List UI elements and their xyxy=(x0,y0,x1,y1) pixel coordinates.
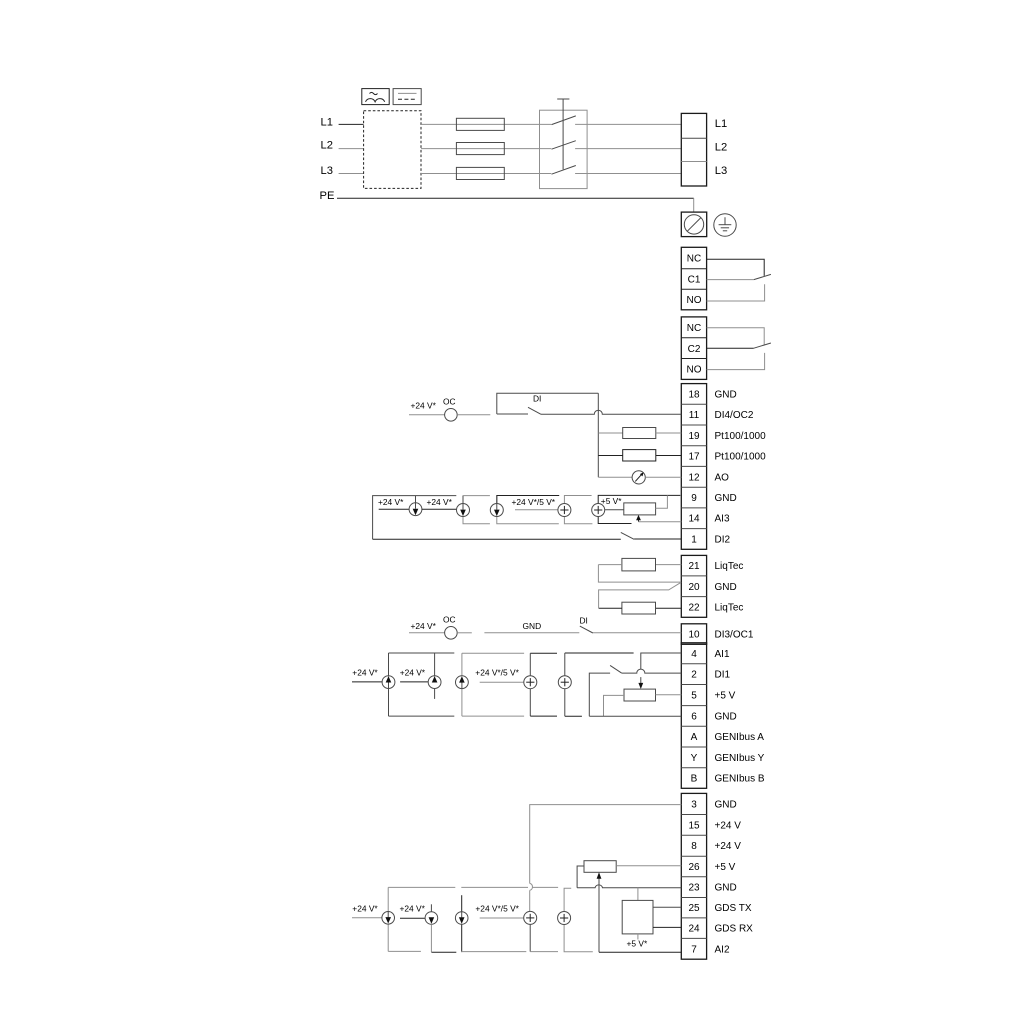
svg-text:GND: GND xyxy=(715,800,737,811)
svg-text:6: 6 xyxy=(691,712,697,723)
svg-text:Y: Y xyxy=(691,753,698,764)
svg-text:DI4/OC2: DI4/OC2 xyxy=(715,410,754,421)
svg-text:5: 5 xyxy=(691,691,697,702)
svg-text:OC: OC xyxy=(443,397,456,407)
svg-text:GENIbus A: GENIbus A xyxy=(715,732,765,743)
svg-text:+24 V*: +24 V* xyxy=(411,401,437,411)
svg-text:+24 V*: +24 V* xyxy=(427,497,453,507)
svg-text:+24 V*/5 V*: +24 V*/5 V* xyxy=(475,904,519,914)
svg-text:25: 25 xyxy=(688,903,700,914)
svg-text:GND: GND xyxy=(715,493,737,504)
svg-text:22: 22 xyxy=(688,603,700,614)
svg-text:8: 8 xyxy=(691,841,697,852)
svg-text:L1: L1 xyxy=(715,118,727,130)
svg-text:15: 15 xyxy=(688,820,700,831)
svg-text:2: 2 xyxy=(691,670,697,681)
svg-text:GDS RX: GDS RX xyxy=(715,924,754,935)
svg-text:+24 V*/5 V*: +24 V*/5 V* xyxy=(512,497,556,507)
svg-text:12: 12 xyxy=(688,472,700,483)
svg-text:GND: GND xyxy=(715,883,737,894)
svg-text:+24 V*/5 V*: +24 V*/5 V* xyxy=(475,668,519,678)
svg-text:DI2: DI2 xyxy=(715,534,731,545)
svg-text:GND: GND xyxy=(715,712,737,723)
svg-text:LiqTec: LiqTec xyxy=(715,561,744,572)
svg-text:NC: NC xyxy=(687,254,701,265)
svg-text:+5 V: +5 V xyxy=(715,691,736,702)
svg-text:L2: L2 xyxy=(715,142,727,154)
svg-text:14: 14 xyxy=(688,514,700,525)
svg-text:21: 21 xyxy=(688,561,700,572)
svg-text:OC: OC xyxy=(443,615,456,625)
svg-text:9: 9 xyxy=(691,493,697,504)
svg-text:20: 20 xyxy=(688,582,700,593)
svg-text:Pt100/1000: Pt100/1000 xyxy=(715,452,767,463)
svg-text:+5 V*: +5 V* xyxy=(601,496,622,506)
svg-text:L3: L3 xyxy=(715,165,727,177)
svg-text:3: 3 xyxy=(691,800,697,811)
svg-text:A: A xyxy=(691,732,698,743)
svg-text:L2: L2 xyxy=(321,140,333,152)
svg-text:AO: AO xyxy=(715,472,730,483)
svg-text:GND: GND xyxy=(715,582,737,593)
svg-text:GND: GND xyxy=(523,621,542,631)
svg-text:+5 V: +5 V xyxy=(715,862,736,873)
svg-text:C2: C2 xyxy=(688,344,701,355)
svg-text:18: 18 xyxy=(688,390,700,401)
svg-text:+24 V: +24 V xyxy=(715,820,742,831)
svg-text:GENIbus B: GENIbus B xyxy=(715,773,765,784)
svg-text:L3: L3 xyxy=(321,165,333,177)
svg-text:DI: DI xyxy=(580,616,588,626)
svg-text:PE: PE xyxy=(320,190,335,202)
svg-text:DI: DI xyxy=(533,394,541,404)
svg-text:+5 V*: +5 V* xyxy=(627,939,648,949)
svg-text:L1: L1 xyxy=(321,117,333,129)
svg-text:GND: GND xyxy=(715,390,737,401)
svg-text:GDS TX: GDS TX xyxy=(715,903,752,914)
svg-text:23: 23 xyxy=(688,883,700,894)
svg-text:+24 V*: +24 V* xyxy=(411,621,437,631)
svg-text:DI1: DI1 xyxy=(715,670,731,681)
svg-text:+24 V*: +24 V* xyxy=(352,668,378,678)
svg-text:26: 26 xyxy=(688,862,700,873)
svg-text:C1: C1 xyxy=(688,274,701,285)
svg-text:AI3: AI3 xyxy=(715,514,730,525)
svg-text:GENIbus Y: GENIbus Y xyxy=(715,753,765,764)
svg-text:+24 V*: +24 V* xyxy=(400,668,426,678)
svg-text:10: 10 xyxy=(688,630,700,641)
svg-text:1: 1 xyxy=(691,534,697,545)
svg-text:DI3/OC1: DI3/OC1 xyxy=(715,630,754,641)
svg-text:+24 V*: +24 V* xyxy=(378,497,404,507)
svg-text:+24 V*: +24 V* xyxy=(400,904,426,914)
svg-text:24: 24 xyxy=(688,924,700,935)
svg-text:AI2: AI2 xyxy=(715,944,730,955)
svg-text:11: 11 xyxy=(689,410,700,421)
svg-text:Pt100/1000: Pt100/1000 xyxy=(715,431,767,442)
svg-text:B: B xyxy=(691,773,698,784)
svg-text:NO: NO xyxy=(687,295,702,306)
svg-text:7: 7 xyxy=(691,944,697,955)
svg-text:NC: NC xyxy=(687,323,701,334)
svg-text:4: 4 xyxy=(691,649,697,660)
svg-text:LiqTec: LiqTec xyxy=(715,603,744,614)
svg-text:+24 V: +24 V xyxy=(715,841,742,852)
svg-text:19: 19 xyxy=(688,431,700,442)
svg-text:+24 V*: +24 V* xyxy=(352,904,378,914)
svg-text:NO: NO xyxy=(687,365,702,376)
svg-text:AI1: AI1 xyxy=(715,649,730,660)
svg-text:17: 17 xyxy=(688,452,700,463)
